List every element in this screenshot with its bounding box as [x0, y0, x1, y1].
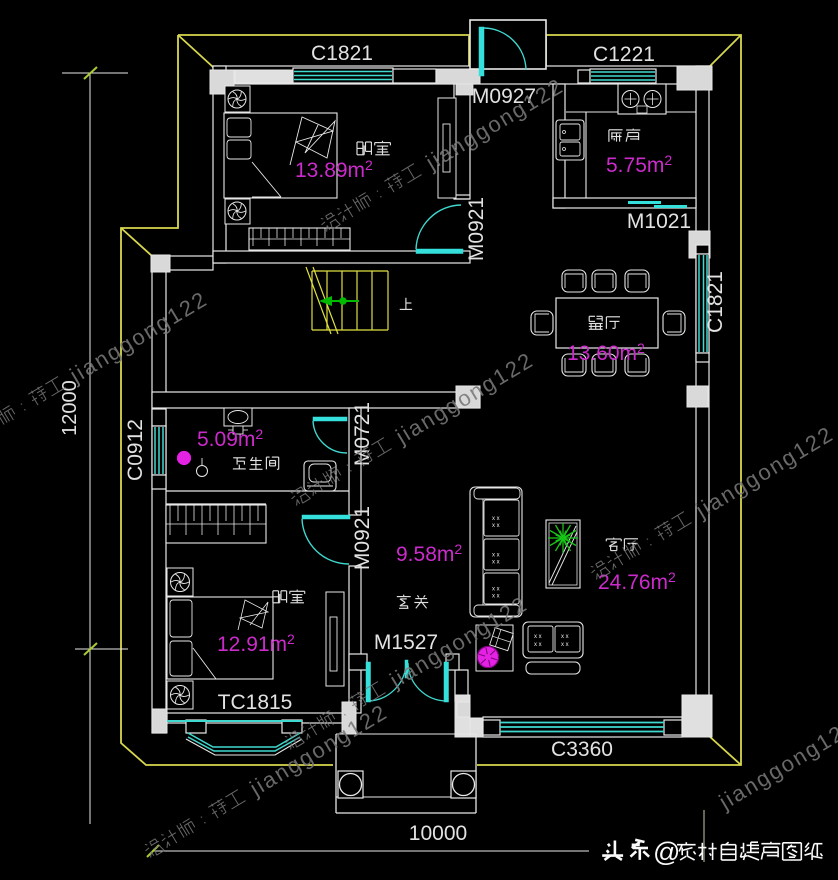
svg-text:C1821: C1821: [311, 42, 373, 65]
svg-text:5.75m2: 5.75m2: [606, 152, 672, 177]
svg-text:M0921: M0921: [465, 197, 488, 261]
svg-text:13.89m2: 13.89m2: [295, 157, 373, 182]
svg-text:13.60m2: 13.60m2: [567, 340, 645, 365]
svg-text:x x: x x: [561, 634, 569, 640]
svg-text:10000: 10000: [409, 822, 467, 845]
svg-text:M1021: M1021: [627, 210, 691, 233]
svg-text:x x: x x: [534, 642, 542, 648]
svg-text:x x: x x: [492, 553, 500, 559]
svg-text:x x: x x: [492, 594, 500, 600]
svg-text:x x: x x: [492, 587, 500, 593]
svg-text:x x: x x: [492, 516, 500, 522]
svg-text:M0721: M0721: [351, 402, 374, 466]
svg-text:x x: x x: [492, 523, 500, 529]
svg-text:M0921: M0921: [351, 506, 374, 570]
svg-text:12.91m2: 12.91m2: [217, 631, 295, 656]
svg-text:x x: x x: [492, 560, 500, 566]
svg-text:C3360: C3360: [551, 738, 613, 761]
svg-text:TC1815: TC1815: [218, 691, 293, 714]
svg-text:@: @: [653, 837, 680, 867]
svg-text:12000: 12000: [59, 380, 81, 436]
svg-text:5.09m2: 5.09m2: [197, 426, 263, 451]
svg-text:x x: x x: [534, 634, 542, 640]
svg-text:x x: x x: [561, 642, 569, 648]
svg-text:9.58m2: 9.58m2: [396, 541, 462, 566]
svg-text:C1821: C1821: [704, 271, 727, 333]
svg-text:C1221: C1221: [593, 43, 655, 66]
svg-text:C0912: C0912: [124, 419, 147, 481]
